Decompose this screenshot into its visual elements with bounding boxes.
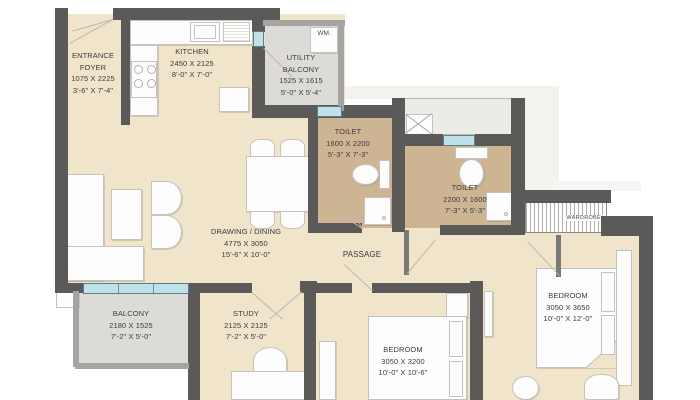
wall [372,283,472,293]
room-dim-mm: 2450 X 2125 [160,58,224,70]
label-kitchen: KITCHEN 2450 X 2125 8'-0" X 7'-0" [160,46,224,81]
wall [304,283,316,400]
stool [512,376,539,400]
pillow [449,321,463,357]
wall [440,225,513,235]
sink-drainboard [223,22,250,42]
room-name: KITCHEN [160,46,224,58]
coffee-table [111,189,142,240]
room-name: STUDY [214,308,278,320]
room-dim-ft: 8'-0" X 7'-0" [160,69,224,81]
room-name: UTILITY [266,52,336,64]
room-name: PASSAGE [334,249,390,261]
armchair [151,215,182,249]
room-dim-mm: 3050 X 3650 [536,302,600,314]
pillow [601,272,615,312]
pillow [601,315,615,355]
parapet [263,20,345,26]
window [317,106,342,117]
washing-machine-label: WM. [311,28,337,37]
wall [639,228,653,400]
window [83,283,189,294]
room-dim-ft: 7'-2" X 5'-0" [96,331,166,343]
room-dim-ft: 15'-6" X 10'-0" [198,249,294,261]
room-dim-mm: 1600 X 2200 [314,138,382,150]
room-dim-ft: 5'-3" X 7'-3" [314,149,382,161]
room-name: DRAWING / DINING [198,226,294,238]
bedside-table [446,293,468,318]
shower-tray [364,197,391,225]
room-dim-mm: 4775 X 3050 [198,238,294,250]
chair [584,374,619,400]
desk [231,371,308,400]
room-name: FOYER [58,62,128,74]
room-name: BALCONY [266,64,336,76]
dining-table [246,156,309,212]
wall [475,134,513,146]
wall [405,134,443,146]
room-dim-mm: 2125 X 2125 [214,320,278,332]
room-dim-ft: 10'-0" X 12'-0" [536,313,600,325]
label-toilet-2: TOILET 2200 X 1600 7'-3" X 5'-3" [434,182,496,217]
room-name: BEDROOM [536,290,600,302]
room-dim-ft: 7'-2" X 5'-0" [214,331,278,343]
room-dim-mm: 1525 X 1615 [266,75,336,87]
label-bedroom-2: BEDROOM 3050 X 3650 10'-0" X 12'-0" [536,290,600,325]
label-passage: PASSAGE [334,249,390,261]
wall [392,98,405,232]
burner-icon [134,79,143,88]
toilet-wc [352,164,379,185]
wardrobe-label: WARDROBE [564,215,603,221]
wall [188,283,200,400]
room-dim-mm: 2200 X 1600 [434,194,496,206]
room-dim-mm: 3050 X 3200 [371,356,435,368]
room-name: TOILET [434,182,496,194]
label-drawing-dining: DRAWING / DINING 4775 X 3050 15'-6" X 10… [198,226,294,261]
drain-icon [382,216,386,220]
wall [252,46,265,108]
wall [521,190,611,203]
room-dim-ft: 5'-0" X 5'-4" [266,87,336,99]
floor-plan: WM. WARDROBE [0,0,700,400]
fridge [219,87,249,112]
label-bedroom-1: BEDROOM 3050 X 3200 10'-0" X 10'-6" [371,344,435,379]
room-dim-ft: 3'-6" X 7'-4" [58,85,128,97]
room-name: ENTRANCE [58,50,128,62]
door-leaf [404,230,409,275]
armchair [151,181,182,215]
label-entrance-foyer: ENTRANCE FOYER 1075 X 2225 3'-6" X 7'-4" [58,50,128,97]
parapet [338,21,344,111]
parapet [73,291,79,367]
parapet [75,363,189,369]
dresser [484,291,493,337]
headboard [616,250,632,386]
label-toilet-1: TOILET 1600 X 2200 5'-3" X 7'-3" [314,126,382,161]
room-dim-ft: 10'-0" X 10'-6" [371,367,435,379]
wall [316,283,352,293]
wardrobe-cabinet [319,341,336,400]
room-name: BEDROOM [371,344,435,356]
sink-basin [194,25,216,39]
burner-icon [147,65,156,74]
room-name: BALCONY [96,308,166,320]
toilet-cistern [379,160,390,189]
wardrobe-strip: WARDROBE [525,202,607,233]
label-study: STUDY 2125 X 2125 7'-2" X 5'-0" [214,308,278,343]
toilet-cistern [455,147,488,159]
door-leaf [556,235,561,277]
pillow [449,361,463,397]
wall [308,223,362,233]
label-balcony: BALCONY 2180 X 1525 7'-2" X 5'-0" [96,308,166,343]
drain-icon [504,212,508,216]
sofa [67,246,144,281]
wall [511,98,525,235]
window [253,31,264,47]
window [443,135,475,146]
room-dim-mm: 2180 X 1525 [96,320,166,332]
washing-machine: WM. [310,27,338,53]
label-utility-balcony: UTILITY BALCONY 1525 X 1615 5'-0" X 5'-4… [266,52,336,99]
dining-chair [280,139,305,157]
burner-icon [134,65,143,74]
wall [470,281,483,400]
room-dim-mm: 1075 X 2225 [58,73,128,85]
dining-chair [250,139,275,157]
room-dim-ft: 7'-3" X 5'-3" [434,205,496,217]
burner-icon [147,79,156,88]
room-name: TOILET [314,126,382,138]
